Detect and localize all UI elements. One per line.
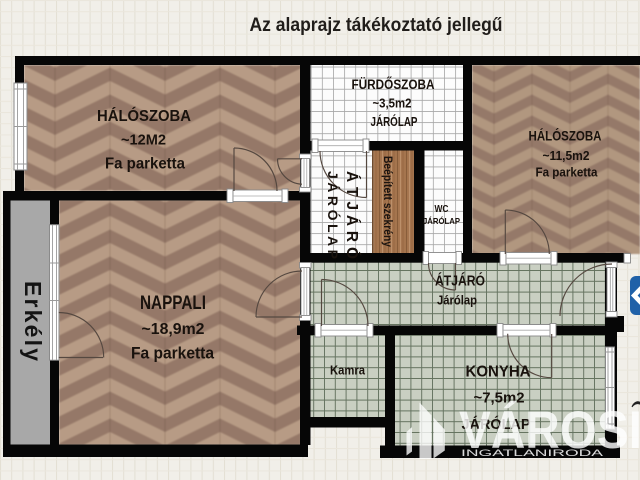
svg-text:Beépített szekrény: Beépített szekrény (381, 156, 393, 248)
svg-text:JÁRÓLAP: JÁRÓLAP (423, 215, 460, 226)
svg-text:WC: WC (435, 203, 449, 215)
svg-text:INGATLANIRODA: INGATLANIRODA (461, 448, 603, 458)
svg-text:Erkély: Erkély (20, 281, 46, 361)
svg-text:Fa parketta: Fa parketta (105, 156, 185, 173)
svg-text:NAPPALI: NAPPALI (140, 293, 206, 314)
svg-text:Járólap: Járólap (437, 293, 477, 308)
svg-text:JÁRÓLAP: JÁRÓLAP (371, 114, 418, 129)
svg-text:HÁLÓSZOBA: HÁLÓSZOBA (97, 106, 191, 125)
svg-text:Fa parketta: Fa parketta (131, 345, 215, 363)
svg-text:~12M2: ~12M2 (121, 133, 166, 149)
svg-text:Az alaprajz tákékoztató jelleg: Az alaprajz tákékoztató jellegű (250, 15, 503, 36)
svg-text:Fa parketta: Fa parketta (536, 165, 599, 180)
svg-text:Kamra: Kamra (330, 364, 366, 378)
svg-text:~3,5m2: ~3,5m2 (373, 97, 412, 111)
svg-text:~18,9m2: ~18,9m2 (142, 321, 205, 338)
svg-text:KONYHA: KONYHA (466, 364, 531, 381)
svg-text:~11,5m2: ~11,5m2 (543, 149, 590, 163)
svg-text:FÜRDŐSZOBA: FÜRDŐSZOBA (352, 77, 435, 92)
svg-text:ÁTJÁRÓ: ÁTJÁRÓ (435, 272, 485, 290)
svg-text:JÁRÓLAP: JÁRÓLAP (325, 171, 342, 259)
svg-text:HÁLÓSZOBA: HÁLÓSZOBA (529, 129, 602, 144)
